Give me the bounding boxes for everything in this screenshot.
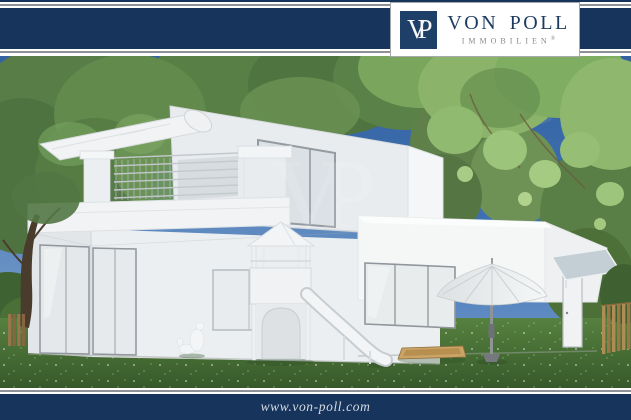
vp-monogram-square: VP bbox=[400, 11, 437, 49]
tower-arch bbox=[262, 308, 300, 359]
von-poll-logo: VP VON POLL IMMOBILIEN® bbox=[390, 2, 580, 57]
terrace-glass-panel bbox=[178, 156, 238, 200]
property-rendering: VP bbox=[0, 56, 631, 388]
registered-mark: ® bbox=[551, 36, 556, 42]
footer-bar: www.von-poll.com bbox=[0, 394, 631, 420]
brand-name: VON POLL bbox=[447, 13, 569, 33]
sandbox bbox=[398, 346, 466, 364]
vp-monogram: VP bbox=[407, 16, 431, 43]
flyer-page: VP www.von-poll.com VP VON POLL IMMOBILI… bbox=[0, 0, 631, 420]
footer-url: www.von-poll.com bbox=[261, 399, 371, 415]
terrace-pillar-left bbox=[80, 151, 114, 159]
corner-window bbox=[40, 245, 136, 355]
brand-subtitle: IMMOBILIEN® bbox=[462, 36, 555, 46]
